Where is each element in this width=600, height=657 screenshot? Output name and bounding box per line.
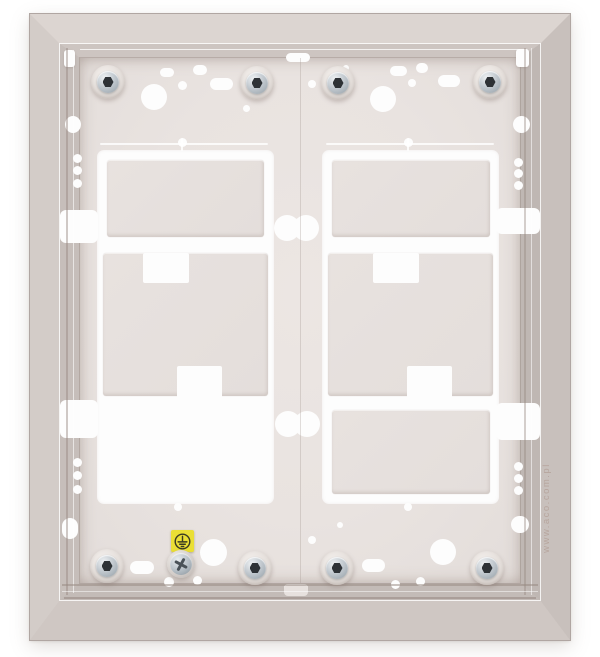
earth-ground-label — [171, 530, 194, 552]
scribe-line — [100, 143, 268, 145]
oval-hole — [416, 63, 428, 73]
circle-hole — [141, 84, 167, 110]
circle-hole — [370, 86, 396, 112]
circle-hole — [174, 503, 182, 511]
mounting-screw — [240, 66, 274, 100]
circle-hole — [514, 474, 523, 483]
ground-screw-head — [170, 553, 192, 575]
frame-groove-line — [73, 50, 74, 593]
plate-notch — [143, 253, 189, 283]
frame-groove-line — [62, 591, 538, 592]
oval-hole — [390, 66, 407, 76]
circle-hole — [430, 539, 456, 565]
peanut-hole — [294, 411, 320, 437]
mounting-screw — [91, 65, 125, 99]
mounting-screw — [90, 549, 124, 583]
frame-groove-line — [531, 48, 532, 595]
circle-hole — [308, 80, 316, 88]
panel-features-layer — [0, 0, 600, 657]
oval-hole — [130, 561, 154, 574]
circle-hole — [514, 158, 523, 167]
plate-notch — [407, 366, 452, 398]
circle-hole — [337, 522, 343, 528]
oval-hole — [62, 518, 78, 539]
edge-slot — [496, 208, 540, 234]
oval-hole — [438, 75, 460, 87]
circle-hole — [514, 169, 523, 178]
mounting-screw — [473, 65, 507, 99]
circle-hole — [514, 486, 523, 495]
frame-groove-line — [66, 48, 68, 595]
circle-hole — [243, 105, 250, 112]
scribe-line — [407, 138, 409, 151]
oval-hole — [286, 53, 310, 62]
edge-slot — [496, 403, 540, 440]
frame-groove-line — [80, 49, 520, 50]
mounting-screw — [320, 551, 354, 585]
circle-hole — [200, 539, 227, 566]
scribe-line — [181, 138, 183, 151]
oval-hole — [210, 78, 233, 90]
mounting-screw — [470, 551, 504, 585]
frame-groove-line — [64, 597, 536, 599]
earth-ground-icon — [173, 532, 192, 551]
frame-groove-line — [62, 584, 538, 586]
ground-screw — [167, 550, 195, 578]
oval-hole — [513, 116, 530, 133]
knockout-plate — [107, 160, 264, 237]
oval-hole — [160, 68, 174, 77]
oval-hole — [193, 65, 207, 75]
circle-hole — [178, 81, 187, 90]
plate-notch — [177, 366, 222, 398]
knockout-plate — [332, 160, 490, 237]
scribe-line — [326, 143, 494, 145]
circle-hole — [514, 181, 523, 190]
product-photo-stage: www.aco.com.pl — [0, 0, 600, 657]
circle-hole — [408, 79, 416, 87]
watermark-text: www.aco.com.pl — [541, 433, 555, 583]
oval-hole — [511, 516, 529, 533]
peanut-hole — [293, 215, 319, 241]
frame-groove-line — [524, 48, 526, 595]
circle-hole — [514, 462, 523, 471]
plate-notch — [373, 253, 419, 283]
mounting-screw — [238, 551, 272, 585]
oval-hole — [362, 559, 385, 572]
circle-hole — [308, 536, 316, 544]
frame-groove-line — [300, 58, 301, 583]
clip-tab — [516, 49, 529, 67]
mounting-screw — [321, 66, 355, 100]
circle-hole — [404, 503, 412, 511]
knockout-plate — [332, 410, 490, 494]
